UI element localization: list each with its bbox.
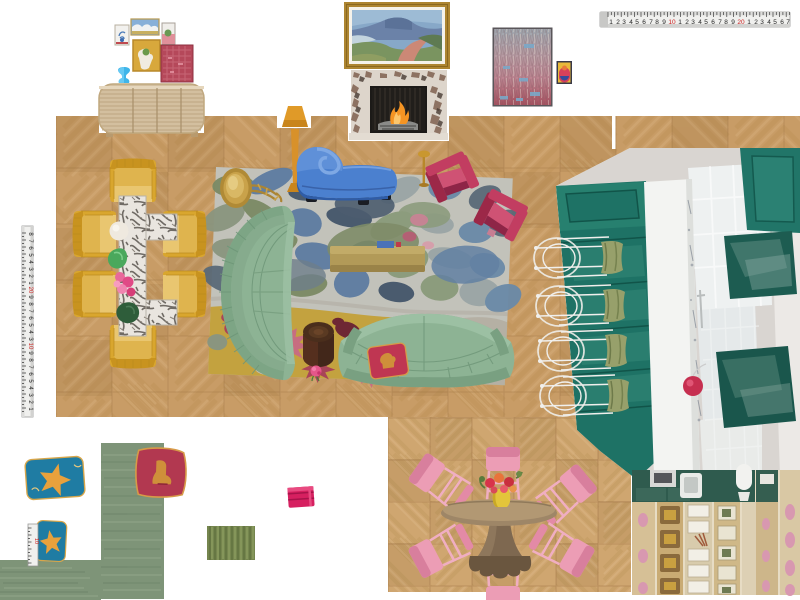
svg-text:4: 4 — [767, 19, 771, 26]
svg-text:8: 8 — [724, 19, 728, 26]
svg-text:10: 10 — [33, 538, 39, 544]
svg-text:2: 2 — [616, 19, 620, 26]
svg-text:4: 4 — [698, 19, 702, 26]
svg-text:20: 20 — [737, 19, 745, 26]
svg-text:20: 20 — [27, 287, 33, 294]
svg-text:5: 5 — [704, 19, 708, 26]
svg-text:9: 9 — [662, 19, 666, 26]
svg-text:1: 1 — [747, 19, 751, 26]
svg-text:10: 10 — [668, 19, 676, 26]
svg-text:2: 2 — [685, 19, 689, 26]
svg-text:7: 7 — [786, 19, 790, 26]
svg-text:3: 3 — [691, 19, 695, 26]
svg-text:5: 5 — [773, 19, 777, 26]
svg-text:6: 6 — [642, 19, 646, 26]
svg-text:9: 9 — [731, 19, 735, 26]
svg-text:1: 1 — [609, 19, 613, 26]
svg-text:10: 10 — [27, 343, 33, 350]
svg-text:7: 7 — [718, 19, 722, 26]
svg-text:3: 3 — [760, 19, 764, 26]
svg-text:7: 7 — [649, 19, 653, 26]
svg-text:4: 4 — [629, 19, 633, 26]
svg-text:1: 1 — [678, 19, 682, 26]
svg-text:3: 3 — [622, 19, 626, 26]
svg-text:6: 6 — [780, 19, 784, 26]
svg-text:6: 6 — [711, 19, 715, 26]
svg-text:8: 8 — [655, 19, 659, 26]
svg-text:5: 5 — [635, 19, 639, 26]
svg-text:2: 2 — [754, 19, 758, 26]
